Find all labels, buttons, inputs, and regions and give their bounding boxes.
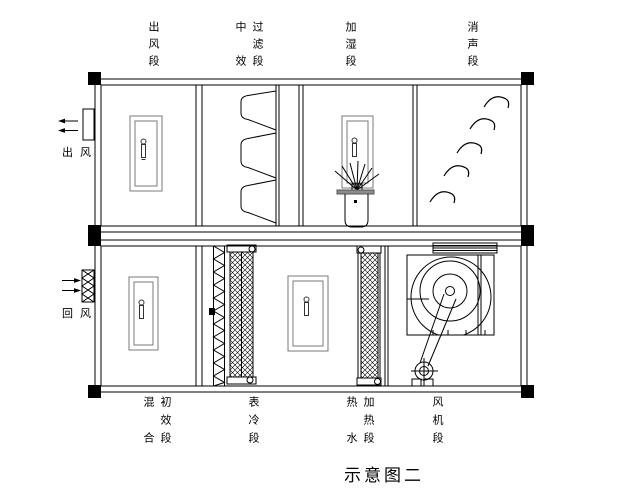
- door-handle: [352, 138, 357, 157]
- top-casing: [88, 72, 534, 238]
- heating-coil: [357, 246, 381, 385]
- section-label-mixing-prefilter: 混 合 初效段: [141, 396, 172, 450]
- water-tray: [337, 190, 374, 194]
- bag-filter: [241, 85, 279, 226]
- fan-discharge-grille: [433, 243, 497, 253]
- belt-drive: [420, 294, 456, 366]
- door-handle: [141, 139, 146, 160]
- coil-pipe-connection: [375, 379, 381, 385]
- section-label-hot-water-heater: 热 水 加热段: [344, 396, 375, 450]
- coil-pipe-connection: [247, 377, 253, 383]
- door-handle: [304, 297, 309, 316]
- access-door-cooler-section: [288, 276, 328, 351]
- return-air-label: 回 风: [62, 305, 93, 321]
- section-label-medium-filter: 中 效 过滤段: [233, 21, 264, 72]
- silencer-sound-arcs: [430, 97, 509, 203]
- diagram-title: 示意图二: [344, 461, 424, 486]
- top-casing-corner-blocks: [88, 72, 534, 238]
- cooling-coil: [227, 245, 256, 384]
- tank-drain-dot: [354, 200, 357, 203]
- section-label-air-outlet: 出风段: [146, 21, 160, 72]
- fan-assembly: [407, 243, 497, 386]
- coil-pipe-connection: [358, 247, 364, 253]
- return-air-damper: [82, 270, 94, 302]
- humidifier-unit: [335, 116, 379, 227]
- section-label-surface-cooler: 表冷段: [246, 396, 260, 450]
- coil-pipe-connection: [249, 246, 255, 252]
- supply-air-flange: [83, 109, 94, 140]
- door-handle: [139, 300, 144, 319]
- access-door-mixing-section: [129, 277, 158, 350]
- section-label-silencer: 消声段: [465, 21, 479, 72]
- filter-clip: [209, 308, 215, 315]
- filter-bag: [241, 180, 276, 223]
- supply-air-label: 出 风: [62, 144, 93, 160]
- ahu-schematic-diagram: 出风段 中 效 过滤段 加湿段 消声段 混 合 初效段 表冷段 热 水 加热段 …: [0, 0, 635, 491]
- access-door-outlet-section: [130, 116, 162, 191]
- section-label-humidifier: 加湿段: [343, 21, 357, 72]
- filter-bag: [241, 133, 276, 178]
- supply-air-arrows: [58, 119, 78, 133]
- filter-bag: [241, 91, 276, 130]
- water-tank: [345, 194, 368, 227]
- fan-wheel-inner: [433, 274, 467, 308]
- supply-air-outlet: [58, 109, 94, 140]
- return-air-inlet: [62, 270, 94, 302]
- top-section-dividers: [196, 85, 417, 226]
- diagram-lineart: [0, 0, 635, 491]
- return-air-arrows: [62, 278, 81, 293]
- fan-hub: [446, 287, 455, 296]
- primary-filter: [209, 246, 225, 386]
- fan-wheel-outer: [420, 261, 480, 321]
- section-label-fan: 风机段: [430, 396, 444, 450]
